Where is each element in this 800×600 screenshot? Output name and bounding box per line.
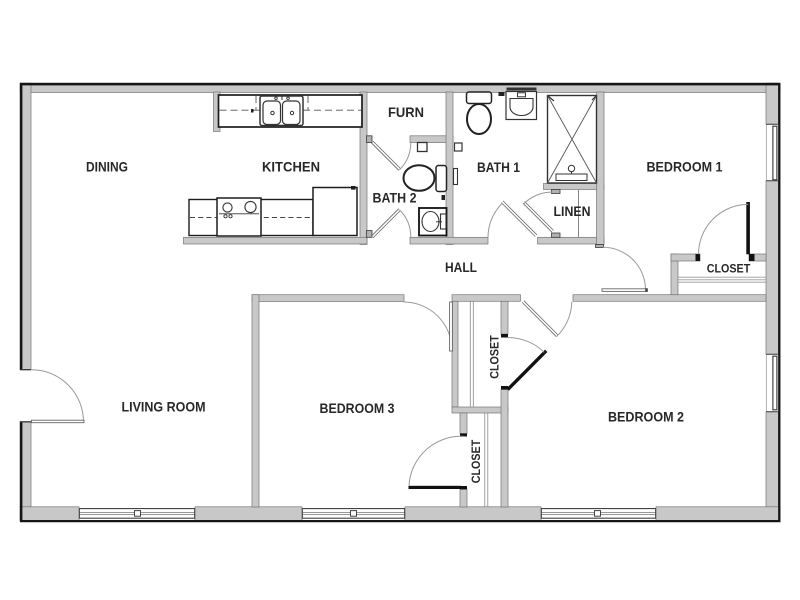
svg-text:KITCHEN: KITCHEN — [262, 159, 320, 175]
svg-text:HALL: HALL — [445, 259, 477, 275]
svg-text:BEDROOM 1: BEDROOM 1 — [647, 159, 723, 175]
svg-text:LINEN: LINEN — [554, 203, 591, 219]
svg-text:LIVING ROOM: LIVING ROOM — [122, 399, 206, 415]
svg-text:FURN: FURN — [388, 104, 424, 120]
svg-text:DINING: DINING — [86, 158, 128, 174]
svg-text:BEDROOM 3: BEDROOM 3 — [320, 400, 395, 416]
svg-text:BATH 1: BATH 1 — [477, 159, 520, 175]
svg-text:CLOSET: CLOSET — [707, 264, 751, 276]
svg-text:CLOSET: CLOSET — [471, 440, 483, 484]
svg-text:BEDROOM 2: BEDROOM 2 — [608, 409, 684, 425]
svg-text:BATH 2: BATH 2 — [373, 190, 417, 206]
svg-text:CLOSET: CLOSET — [490, 335, 502, 379]
